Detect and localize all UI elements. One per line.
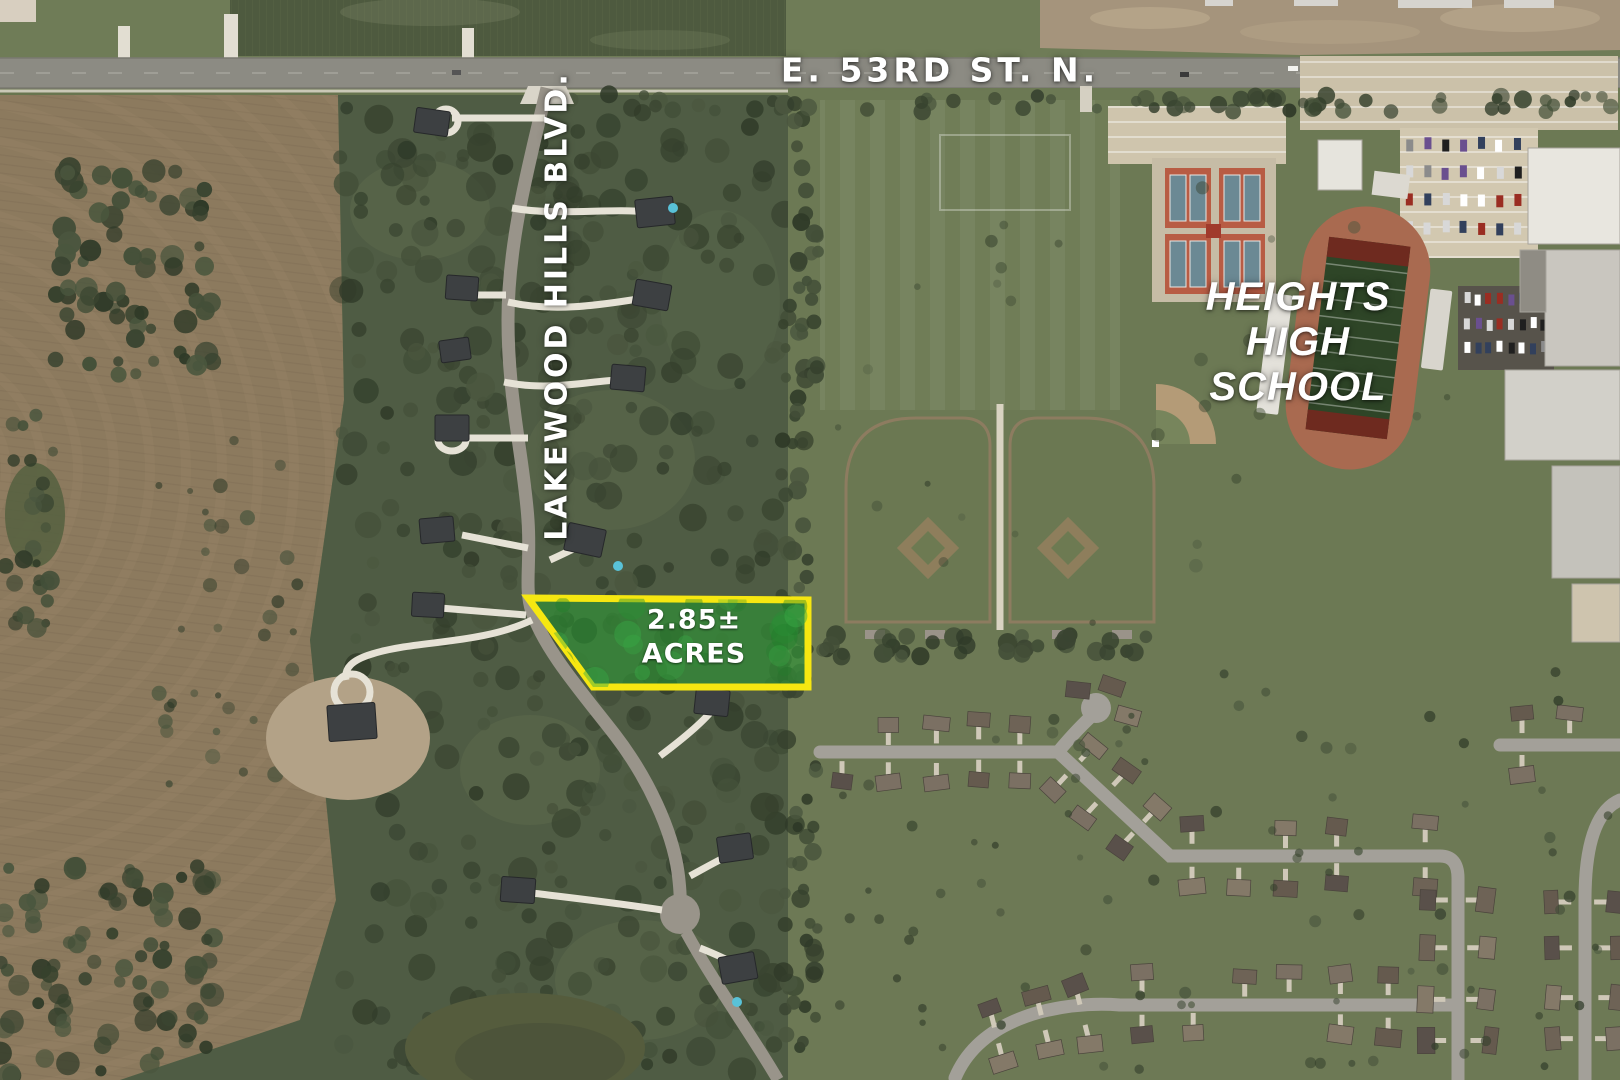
parcel-acreage-unit: ACRES [642,637,746,671]
school-label-line-3: SCHOOL [1206,364,1391,409]
parcel-acreage-value: 2.85± [642,603,746,637]
rec-building [1318,140,1362,190]
aerial-map [0,0,1620,1080]
estate-cul-de-sac [660,894,700,934]
aerial-map-stage: E. 53RD ST. N. LAKEWOOD HILLS BLVD. HEIG… [0,0,1620,1080]
residential-neighborhood [788,650,1620,1080]
parcel-acreage-label: 2.85± ACRES [642,603,746,671]
baseball-fields [846,404,1154,639]
school-label-heights-high-school: HEIGHTS HIGH SCHOOL [1206,275,1391,409]
farm-building-roof [0,0,36,22]
street-label-lakewood-hills-blvd: LAKEWOOD HILLS BLVD. [540,71,575,540]
school-label-line-1: HEIGHTS [1206,275,1391,320]
school-label-line-2: HIGH [1206,320,1391,365]
street-label-e-53rd-st-n: E. 53RD ST. N. [781,51,1099,90]
